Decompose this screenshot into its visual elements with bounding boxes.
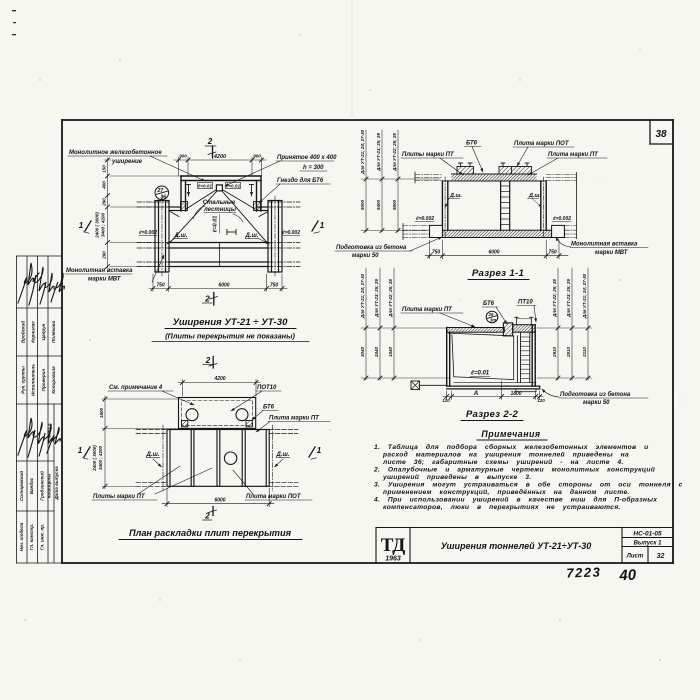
svg-text:марки МВТ: марки МВТ	[88, 277, 122, 283]
svg-text:1: 1	[78, 446, 83, 455]
svg-text:Плита марки ПТ: Плита марки ПТ	[269, 416, 320, 422]
svg-text:120: 120	[442, 398, 450, 403]
svg-text:ℓ=0.01: ℓ=0.01	[471, 371, 490, 377]
svg-text:марки 50: марки 50	[583, 400, 610, 406]
svg-text:5800: 5800	[392, 199, 397, 210]
svg-text:3400 ; 4200: 3400 ; 4200	[98, 445, 103, 470]
svg-text:750: 750	[270, 283, 279, 289]
svg-text:применением конструкций, приве: применением конструкций, приведённых на …	[383, 488, 630, 496]
svg-text:Для УТ-23; 25; 29: Для УТ-23; 25; 29	[374, 279, 379, 318]
svg-text:2: 2	[205, 356, 211, 365]
svg-text:ТД: ТД	[381, 535, 406, 556]
svg-text:Плиты марки ПТ: Плиты марки ПТ	[402, 152, 455, 158]
svg-text:Кошицелы: Кошицелы	[47, 474, 52, 499]
svg-text:ℓ=0.002: ℓ=0.002	[139, 230, 157, 236]
svg-text:компенсаторов, люки в перекрыт: компенсаторов, люки в перекрытиях не уст…	[383, 504, 621, 511]
svg-text:Гл. инж. пр.: Гл. инж. пр.	[40, 524, 45, 550]
svg-text:h = 300: h = 300	[303, 165, 324, 171]
svg-text:36: 36	[160, 195, 166, 201]
svg-text:290: 290	[102, 198, 107, 207]
svg-text:Бандас: Бандас	[29, 477, 34, 494]
svg-text:А: А	[473, 390, 479, 397]
svg-text:ℓ=0.002: ℓ=0.002	[553, 216, 571, 222]
svg-text:марки МВТ: марки МВТ	[595, 250, 629, 256]
svg-text:Плита марки ПТ: Плита марки ПТ	[402, 307, 453, 313]
svg-text:Д.ш.: Д.ш.	[275, 452, 289, 458]
svg-text:150: 150	[102, 165, 107, 173]
svg-text:2: 2	[204, 512, 210, 521]
svg-text:НС-01-05: НС-01-05	[633, 531, 662, 538]
svg-text:2110: 2110	[582, 347, 587, 358]
svg-text:27: 27	[156, 188, 164, 194]
svg-text:3т: 3т	[490, 318, 496, 323]
svg-text:Проверил: Проверил	[41, 369, 46, 392]
svg-text:Корнилас: Корнилас	[31, 321, 36, 343]
svg-text:2400 ( 3000): 2400 ( 3000)	[92, 445, 97, 472]
svg-text:Полякова: Полякова	[51, 321, 56, 344]
svg-text:БТ6: БТ6	[483, 301, 495, 307]
svg-text:2440: 2440	[374, 346, 379, 358]
svg-text:120: 120	[537, 398, 545, 403]
svg-text:Исполнитель: Исполнитель	[31, 364, 36, 396]
svg-text:ℓ=0.01: ℓ=0.01	[226, 183, 240, 188]
svg-text:2400 ( 3000): 2400 ( 3000)	[95, 212, 100, 239]
svg-text:План раскладки плит перекры: План раскладки плит перекрытия	[129, 528, 292, 538]
svg-text:ℓ=0.01: ℓ=0.01	[198, 183, 212, 188]
svg-text:Разрез 2-2: Разрез 2-2	[466, 409, 519, 420]
svg-text:Гродзинский: Гродзинский	[39, 471, 45, 501]
svg-text:Для УТ-22; 26; 28: Для УТ-22; 26; 28	[552, 279, 557, 318]
svg-text:БТ6: БТ6	[466, 141, 478, 147]
svg-text:ℓ=0.002: ℓ=0.002	[282, 230, 300, 236]
svg-text:3040: 3040	[360, 346, 365, 357]
svg-text:7223: 7223	[566, 564, 601, 580]
svg-text:1800: 1800	[510, 391, 521, 397]
svg-text:2: 2	[207, 137, 213, 146]
svg-text:750: 750	[156, 283, 165, 289]
svg-text:уширений приведены в выпуске 3: уширений приведены в выпуске 3.	[382, 473, 531, 481]
svg-text:Подготовка из бетона: Подготовка из бетона	[336, 244, 407, 251]
svg-text:ПТ10: ПТ10	[518, 300, 533, 306]
svg-text:900: 900	[253, 154, 261, 159]
svg-text:Стальные: Стальные	[203, 200, 236, 206]
svg-text:2. Опалубочные и арматурные че: 2. Опалубочные и арматурные чертежи моно…	[373, 466, 655, 474]
svg-text:ℓ=0.01: ℓ=0.01	[213, 216, 219, 234]
svg-text:Разрез 1-1: Разрез 1-1	[472, 268, 524, 279]
svg-text:Лист: Лист	[626, 554, 644, 560]
svg-text:1840: 1840	[388, 346, 393, 357]
svg-text:4200: 4200	[213, 154, 226, 160]
svg-text:Примечания: Примечания	[481, 429, 540, 439]
svg-text:4200: 4200	[213, 376, 225, 382]
svg-text:ПОТ10: ПОТ10	[257, 385, 277, 391]
svg-text:ℓ=0.002: ℓ=0.002	[416, 216, 434, 222]
svg-text:Для УТ-23; 25; 29: Для УТ-23; 25; 29	[376, 133, 381, 172]
svg-text:2910: 2910	[552, 346, 557, 358]
svg-text:Плита марки ПОТ: Плита марки ПОТ	[246, 494, 302, 500]
svg-text:Принятое 400 х 400: Принятое 400 х 400	[277, 155, 337, 161]
svg-text:Для УТ-21; 24; 27-30: Для УТ-21; 24; 27-30	[360, 273, 365, 319]
svg-text:5400: 5400	[376, 199, 381, 210]
svg-text:Цапрун: Цапрун	[41, 323, 46, 340]
svg-text:26: 26	[488, 312, 494, 317]
svg-text:Д.ш.: Д.ш.	[449, 193, 462, 199]
svg-text:Уширения тоннелей УТ-21÷УТ-3: Уширения тоннелей УТ-21÷УТ-30	[441, 541, 592, 551]
svg-text:Солнцевский: Солнцевский	[18, 471, 24, 501]
svg-text:Копировала: Копировала	[51, 366, 56, 394]
svg-text:Плиты марки ПТ: Плиты марки ПТ	[93, 494, 146, 500]
svg-text:750: 750	[432, 250, 441, 256]
svg-text:Д.ш.: Д.ш.	[173, 233, 187, 239]
svg-text:Д.ш.: Д.ш.	[145, 452, 159, 458]
svg-text:38: 38	[655, 129, 667, 140]
svg-text:2510: 2510	[566, 346, 571, 358]
svg-text:Плита марки ПТ: Плита марки ПТ	[548, 152, 599, 158]
svg-text:290: 290	[102, 251, 107, 260]
svg-text:Монолитная вставка: Монолитная вставка	[571, 242, 638, 248]
svg-text:1. Таблица для подбора сборных: 1. Таблица для подбора сборных железобет…	[374, 443, 649, 451]
svg-text:расход материалов на уширения: расход материалов на уширения тоннелей п…	[382, 451, 629, 459]
svg-text:400: 400	[102, 181, 107, 190]
svg-text:3. Уширения могут устраиваться: 3. Уширения могут устраиваться в обе сто…	[374, 481, 683, 489]
svg-text:листе 36; габаритные схемы уши: листе 36; габаритные схемы уширений - на…	[382, 458, 624, 466]
svg-text:Для УТ-22; 26; 28: Для УТ-22; 26; 28	[392, 133, 397, 172]
svg-text:Д.ш.: Д.ш.	[244, 233, 258, 239]
svg-text:2: 2	[204, 295, 210, 304]
svg-text:Для УТ-21; 24; 27-30: Для УТ-21; 24; 27-30	[582, 273, 587, 319]
svg-text:6000: 6000	[218, 283, 229, 289]
svg-text:6000: 6000	[488, 250, 499, 256]
svg-text:Для УТ-22; 26; 28: Для УТ-22; 26; 28	[388, 279, 393, 318]
svg-text:Монолитная вставка: Монолитная вставка	[66, 268, 133, 274]
svg-text:Гл. констр.: Гл. констр.	[29, 524, 34, 551]
svg-text:Дата выпуска: Дата выпуска	[54, 466, 59, 501]
svg-text:БТ6: БТ6	[263, 405, 275, 411]
svg-text:900: 900	[179, 154, 187, 159]
svg-text:40: 40	[618, 567, 637, 585]
svg-text:1: 1	[320, 221, 325, 230]
svg-text:Нач. отдела: Нач. отдела	[19, 522, 24, 551]
svg-text:4. При использовании уширений: 4. При использовании уширений в качестве…	[373, 496, 657, 504]
svg-text:См. примечание 4: См. примечание 4	[109, 385, 163, 391]
svg-text:32: 32	[657, 553, 665, 560]
svg-text:6000: 6000	[214, 498, 225, 504]
svg-text:1: 1	[317, 446, 322, 455]
svg-text:Подготовка из бетона: Подготовка из бетона	[560, 391, 631, 398]
svg-text:Вройский: Вройский	[20, 321, 26, 343]
svg-text:лестницы: лестницы	[203, 207, 237, 213]
svg-text:Для УТ-23; 25; 29: Для УТ-23; 25; 29	[566, 279, 571, 318]
svg-text:750: 750	[548, 250, 557, 256]
svg-text:3400 ; 4200: 3400 ; 4200	[101, 212, 106, 237]
svg-text:Рук. группы: Рук. группы	[21, 366, 26, 394]
svg-text:марки 50: марки 50	[352, 253, 379, 259]
svg-text:Для УТ-21; 24; 27-30: Для УТ-21; 24; 27-30	[360, 129, 365, 175]
svg-text:уширение: уширение	[111, 159, 143, 165]
svg-text:Уширения УТ-21 ÷ УТ-30: Уширения УТ-21 ÷ УТ-30	[173, 317, 289, 328]
svg-text:1800: 1800	[99, 407, 104, 418]
svg-text:Монолитное железобетонное: Монолитное железобетонное	[69, 149, 162, 156]
svg-text:5000: 5000	[360, 199, 365, 210]
svg-text:Гнездо для БТ6: Гнездо для БТ6	[277, 178, 324, 184]
svg-text:1963: 1963	[385, 556, 401, 563]
svg-text:Д.ш.: Д.ш.	[528, 193, 541, 199]
svg-text:Выпуск 1: Выпуск 1	[634, 541, 663, 547]
svg-text:Плита марки ПОТ: Плита марки ПОТ	[514, 141, 570, 147]
svg-text:(Плиты перекрытия не показа: (Плиты перекрытия не показаны)	[165, 332, 295, 341]
svg-text:1: 1	[79, 221, 84, 230]
